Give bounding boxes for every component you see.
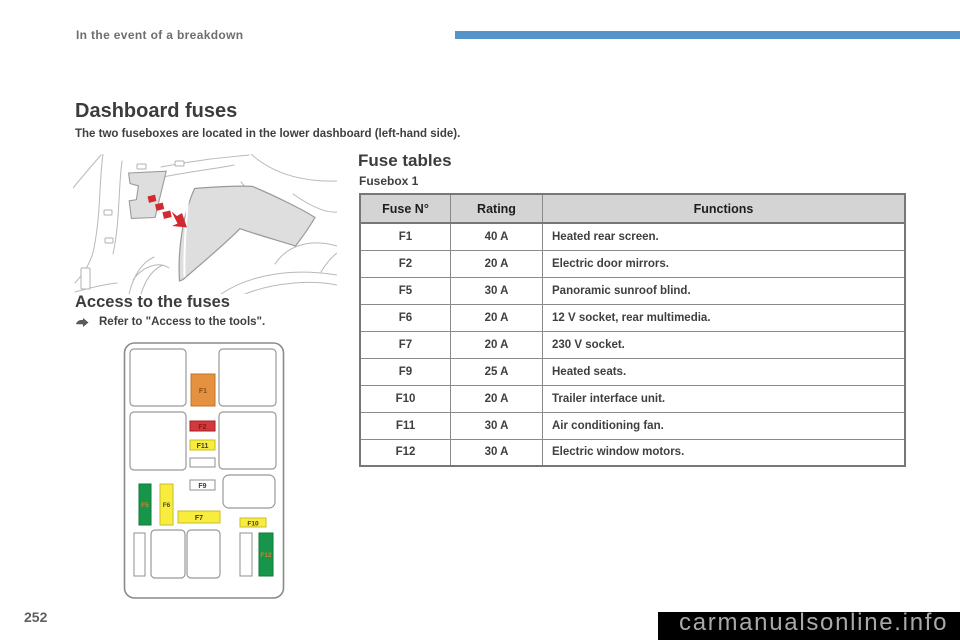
svg-text:F11: F11 [197,443,209,450]
svg-text:F7: F7 [195,515,203,522]
svg-text:F6: F6 [163,502,171,509]
svg-text:F10: F10 [247,521,259,528]
svg-text:F5: F5 [141,502,149,509]
svg-text:F12: F12 [260,552,272,559]
svg-text:F2: F2 [198,424,206,431]
svg-text:F9: F9 [198,483,206,490]
svg-text:F1: F1 [199,388,207,395]
